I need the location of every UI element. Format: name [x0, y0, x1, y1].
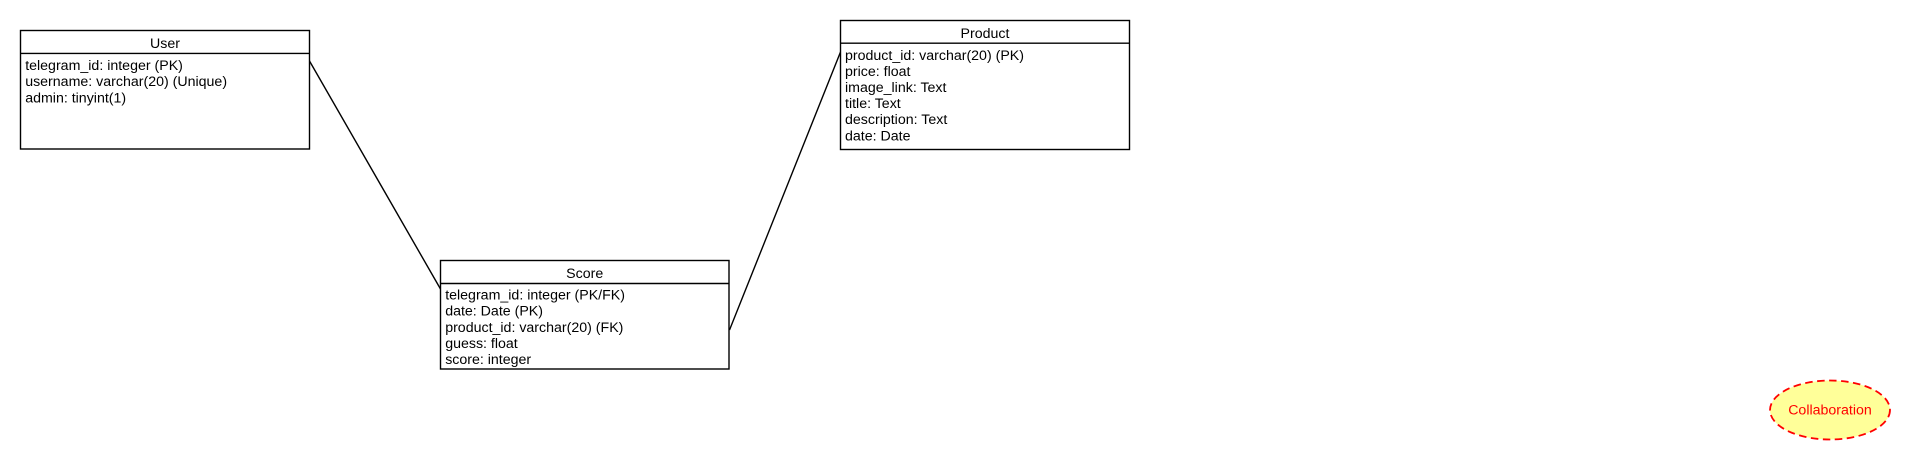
svg-text:description: Text: description: Text — [845, 112, 947, 128]
svg-text:product_id: varchar(20) (FK): product_id: varchar(20) (FK) — [445, 320, 623, 336]
svg-text:Product: Product — [961, 26, 1010, 42]
svg-text:Collaboration: Collaboration — [1788, 403, 1872, 419]
svg-text:telegram_id: integer (PK): telegram_id: integer (PK) — [25, 58, 183, 74]
svg-text:score: integer: score: integer — [445, 352, 531, 368]
svg-text:image_link: Text: image_link: Text — [845, 80, 947, 96]
svg-text:product_id: varchar(20) (PK): product_id: varchar(20) (PK) — [845, 48, 1024, 64]
svg-text:title: Text: title: Text — [845, 96, 901, 112]
svg-text:username: varchar(20) (Unique): username: varchar(20) (Unique) — [25, 74, 227, 90]
svg-text:User: User — [150, 36, 180, 52]
svg-text:guess: float: guess: float — [445, 336, 518, 352]
svg-text:admin: tinyint(1): admin: tinyint(1) — [25, 90, 126, 106]
svg-text:Score: Score — [566, 266, 603, 282]
svg-text:price: float: price: float — [845, 64, 911, 80]
svg-text:date: Date: date: Date — [845, 128, 911, 144]
svg-text:date: Date (PK): date: Date (PK) — [445, 304, 543, 320]
svg-text:telegram_id: integer (PK/FK): telegram_id: integer (PK/FK) — [445, 288, 625, 304]
